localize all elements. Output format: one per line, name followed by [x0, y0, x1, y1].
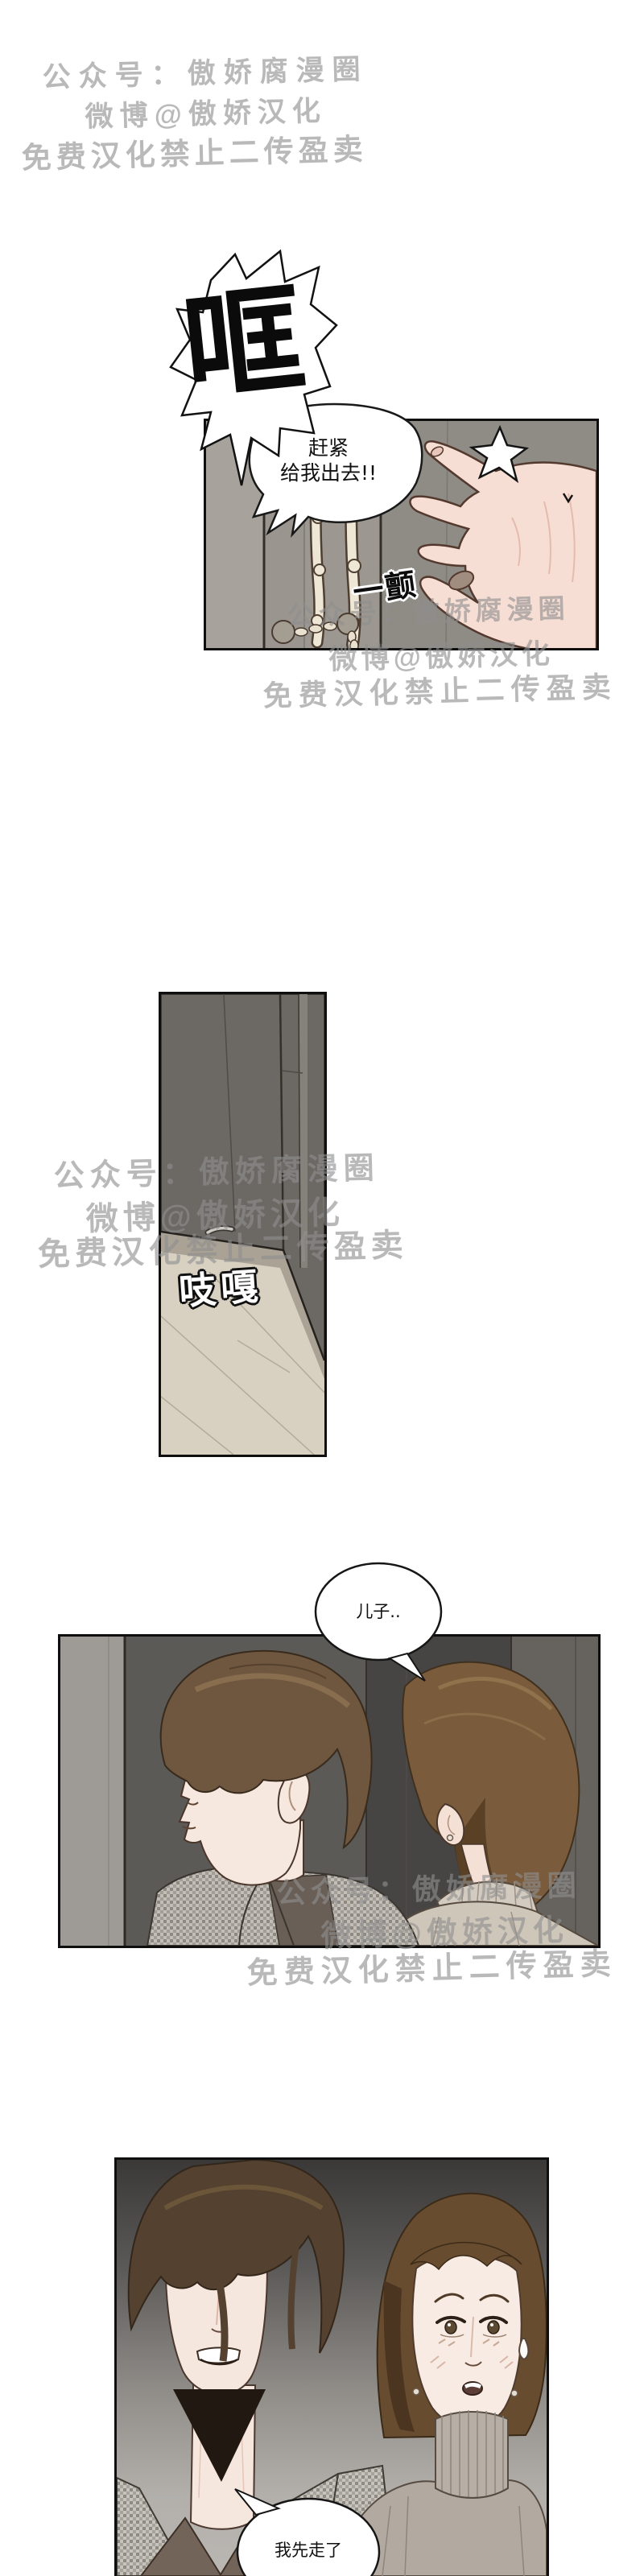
speech-bubble-son: [312, 1560, 453, 1687]
speech-text-leaving: 我先走了: [256, 2537, 361, 2562]
sfx-door-slam-text: 哐: [178, 278, 311, 411]
watermark-public-account: 公众号：傲娇腐漫圈: [287, 587, 570, 633]
watermark-notice: 免费汉化禁止二传盈卖: [21, 125, 368, 177]
watermark-notice: 免费汉化禁止二传盈卖: [37, 1219, 408, 1275]
watermark-notice: 免费汉化禁止二传盈卖: [246, 1938, 617, 1992]
earring-stud: [511, 2390, 518, 2396]
earring-stud: [413, 2388, 419, 2395]
watermark-public-account: 公众号：傲娇腐漫圈: [276, 1862, 581, 1912]
sweat-drop-icon: [519, 2339, 528, 2359]
speech-text-son: 儿子..: [322, 1599, 435, 1623]
watermark-notice: 免费汉化禁止二传盈卖: [262, 663, 617, 715]
comic-page: 公众号：傲娇腐漫圈 微博@傲娇汉化 免费汉化禁止二传盈卖 哐: [0, 0, 644, 2576]
earring-stud: [448, 1835, 453, 1841]
speech-bubble-leaving: [232, 2487, 385, 2576]
